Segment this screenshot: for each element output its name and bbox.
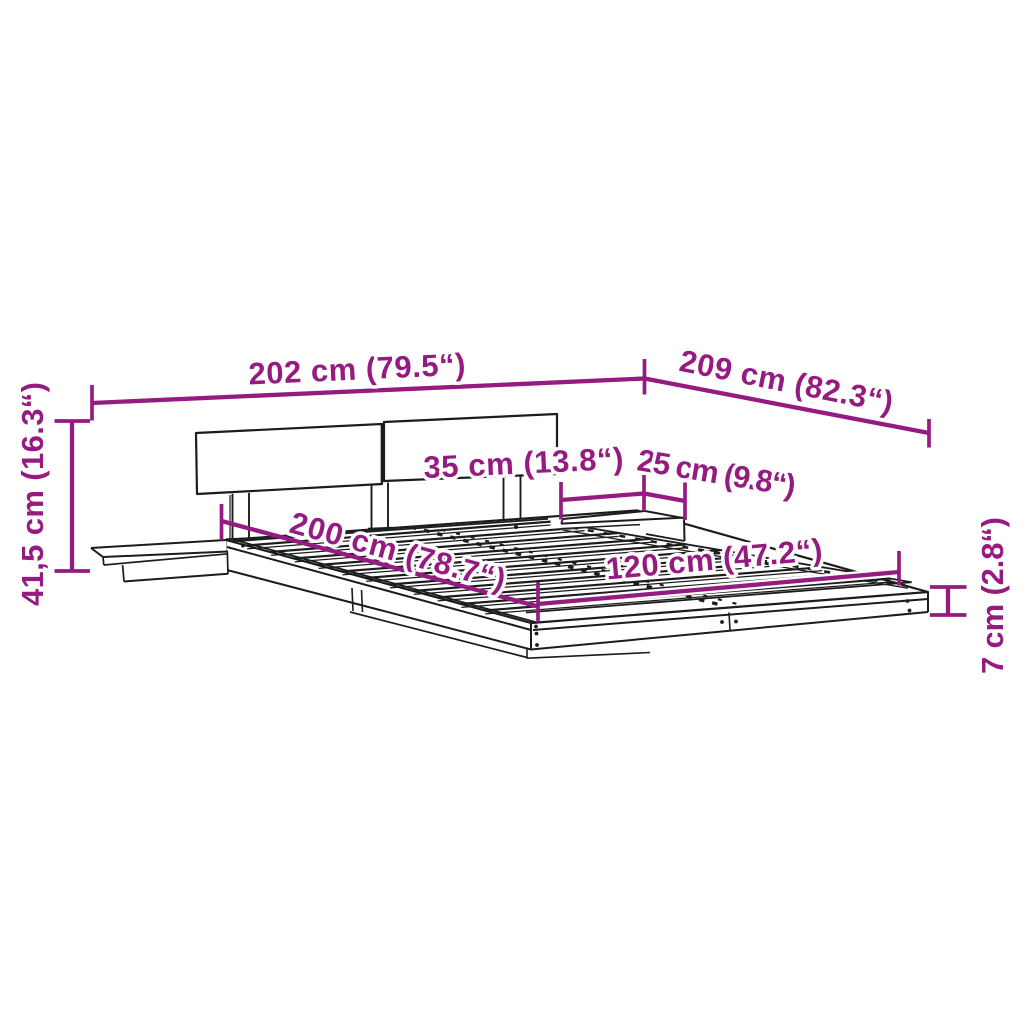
svg-text:41,5 cm (16.3“): 41,5 cm (16.3“) [15, 382, 50, 606]
svg-text:7 cm (2.8“): 7 cm (2.8“) [975, 517, 1010, 674]
